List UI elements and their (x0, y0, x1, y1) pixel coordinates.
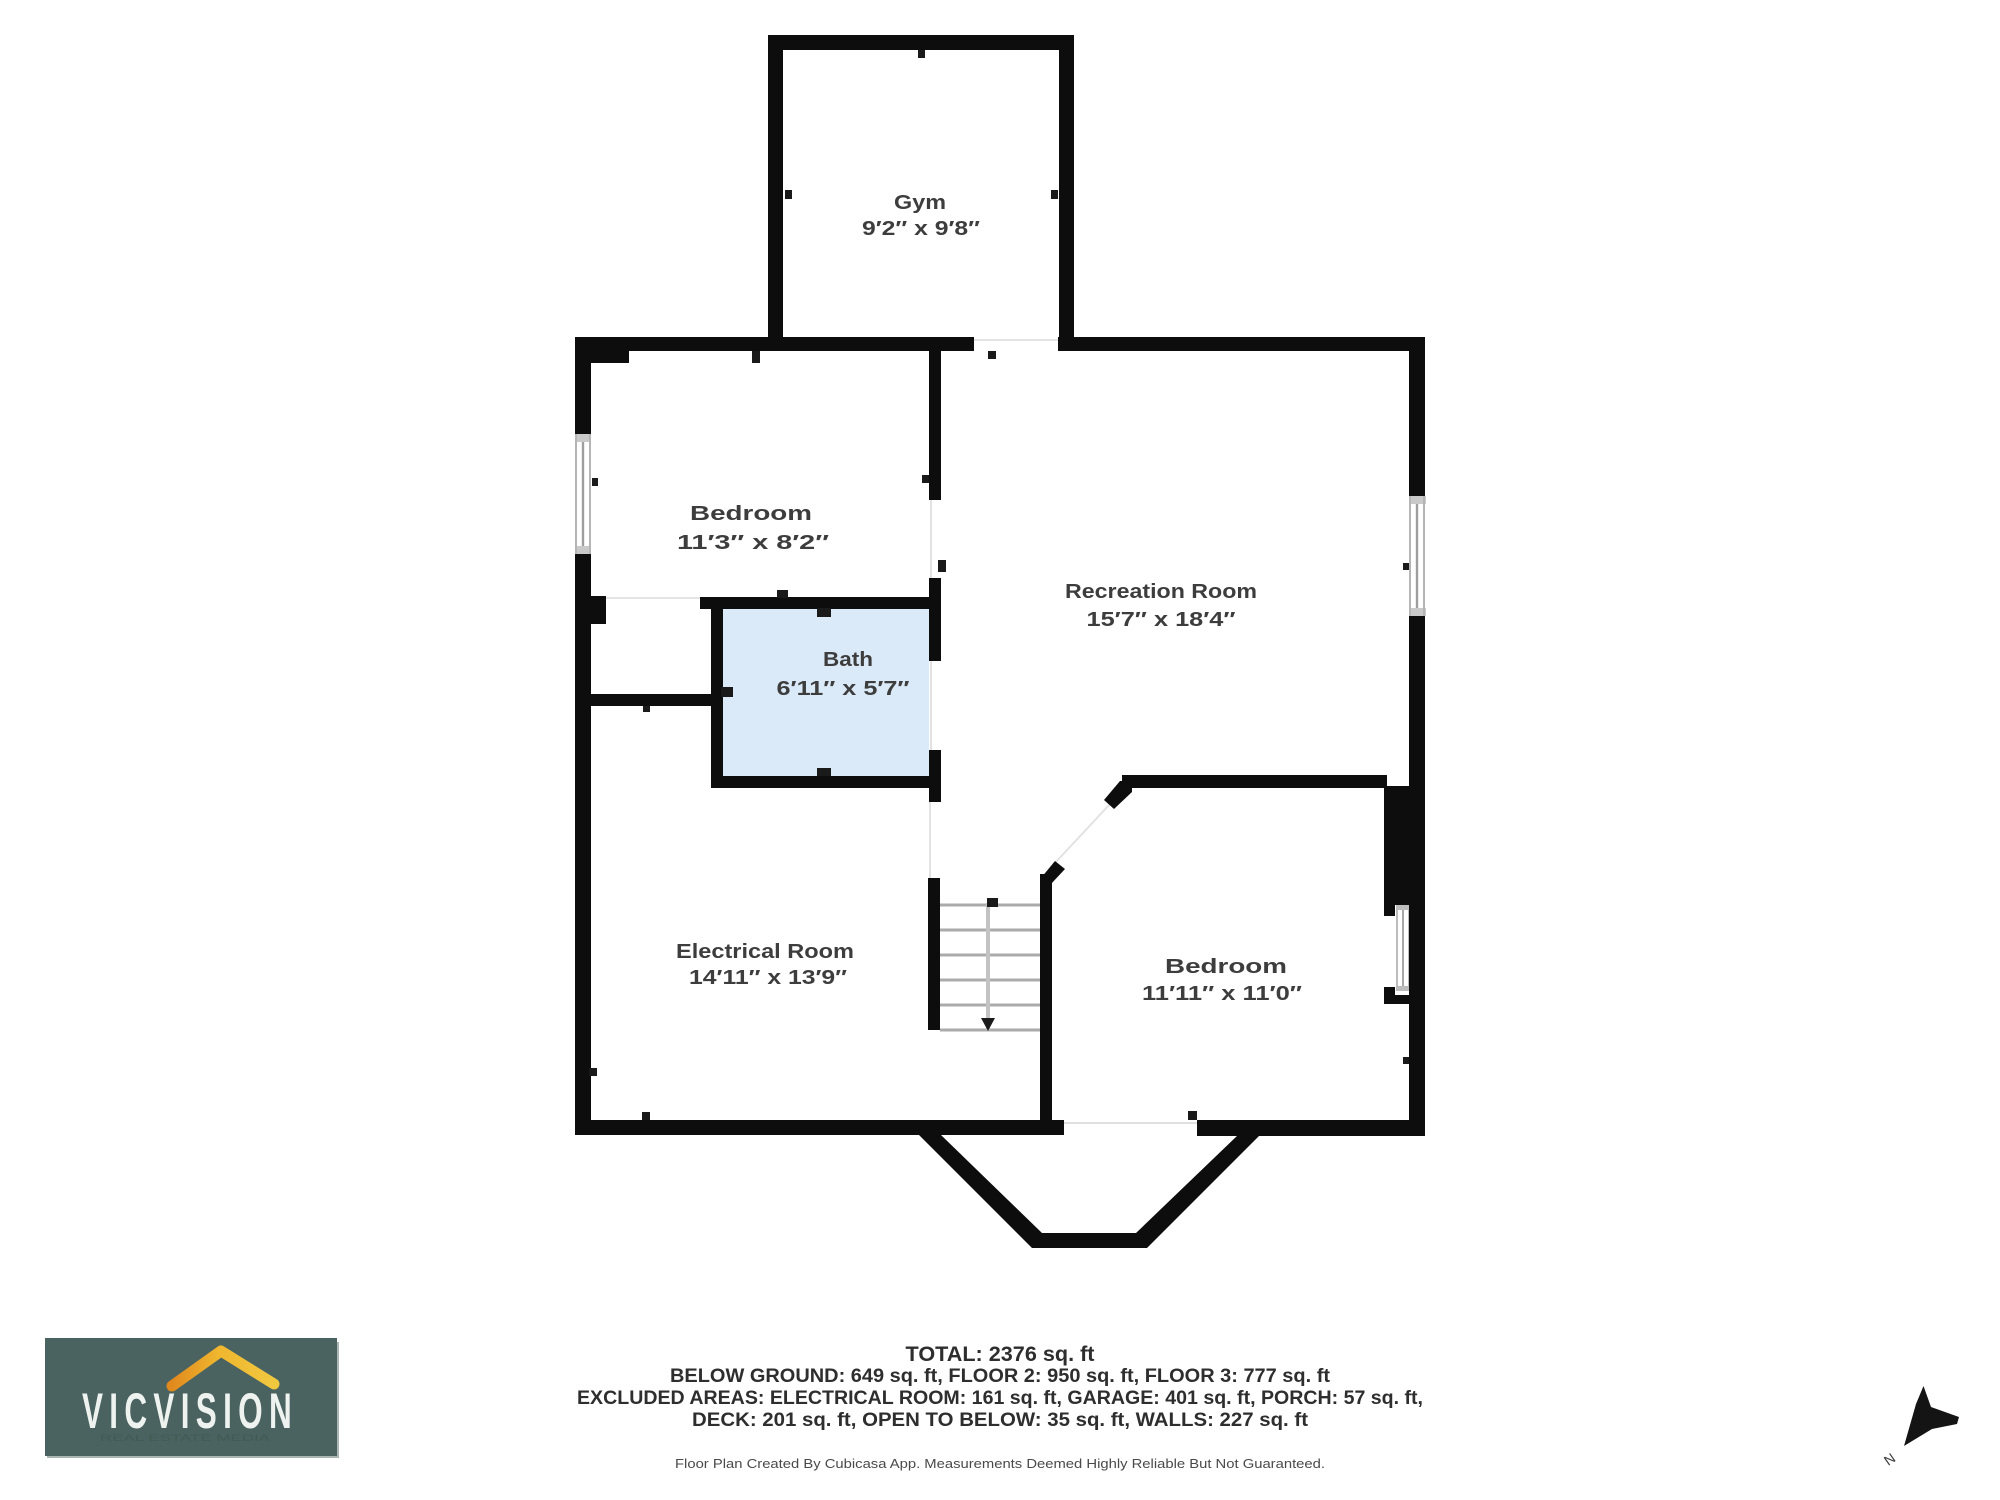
svg-text:VICVISION: VICVISION (82, 1383, 298, 1439)
svg-text:Bedroom: Bedroom (690, 503, 812, 525)
svg-text:BELOW GROUND: 649 sq. ft, FLOO: BELOW GROUND: 649 sq. ft, FLOOR 2: 950 s… (670, 1366, 1331, 1387)
svg-text:REAL ESTATE MEDIA: REAL ESTATE MEDIA (100, 1433, 271, 1444)
svg-text:DECK: 201 sq. ft, OPEN TO BELO: DECK: 201 sq. ft, OPEN TO BELOW: 35 sq. … (692, 1410, 1309, 1431)
svg-text:Recreation Room: Recreation Room (1065, 581, 1257, 603)
svg-text:Bath: Bath (823, 649, 873, 671)
svg-text:TOTAL: 2376 sq. ft: TOTAL: 2376 sq. ft (906, 1343, 1095, 1366)
svg-text:14′11″ x 13′9″: 14′11″ x 13′9″ (689, 967, 848, 989)
svg-text:EXCLUDED AREAS: ELECTRICAL ROO: EXCLUDED AREAS: ELECTRICAL ROOM: 161 sq.… (577, 1388, 1423, 1409)
svg-text:Floor Plan Created By Cubicasa: Floor Plan Created By Cubicasa App. Meas… (675, 1457, 1325, 1471)
svg-text:15′7″ x 18′4″: 15′7″ x 18′4″ (1087, 609, 1237, 631)
svg-text:11′3″ x 8′2″: 11′3″ x 8′2″ (677, 532, 830, 554)
svg-text:Gym: Gym (894, 192, 946, 214)
svg-text:9′2″ x 9′8″: 9′2″ x 9′8″ (862, 218, 981, 240)
svg-text:6′11″ x 5′7″: 6′11″ x 5′7″ (777, 678, 911, 700)
svg-text:Bedroom: Bedroom (1165, 956, 1287, 978)
svg-text:Electrical Room: Electrical Room (676, 941, 854, 963)
svg-text:11′11″ x 11′0″: 11′11″ x 11′0″ (1142, 983, 1303, 1005)
